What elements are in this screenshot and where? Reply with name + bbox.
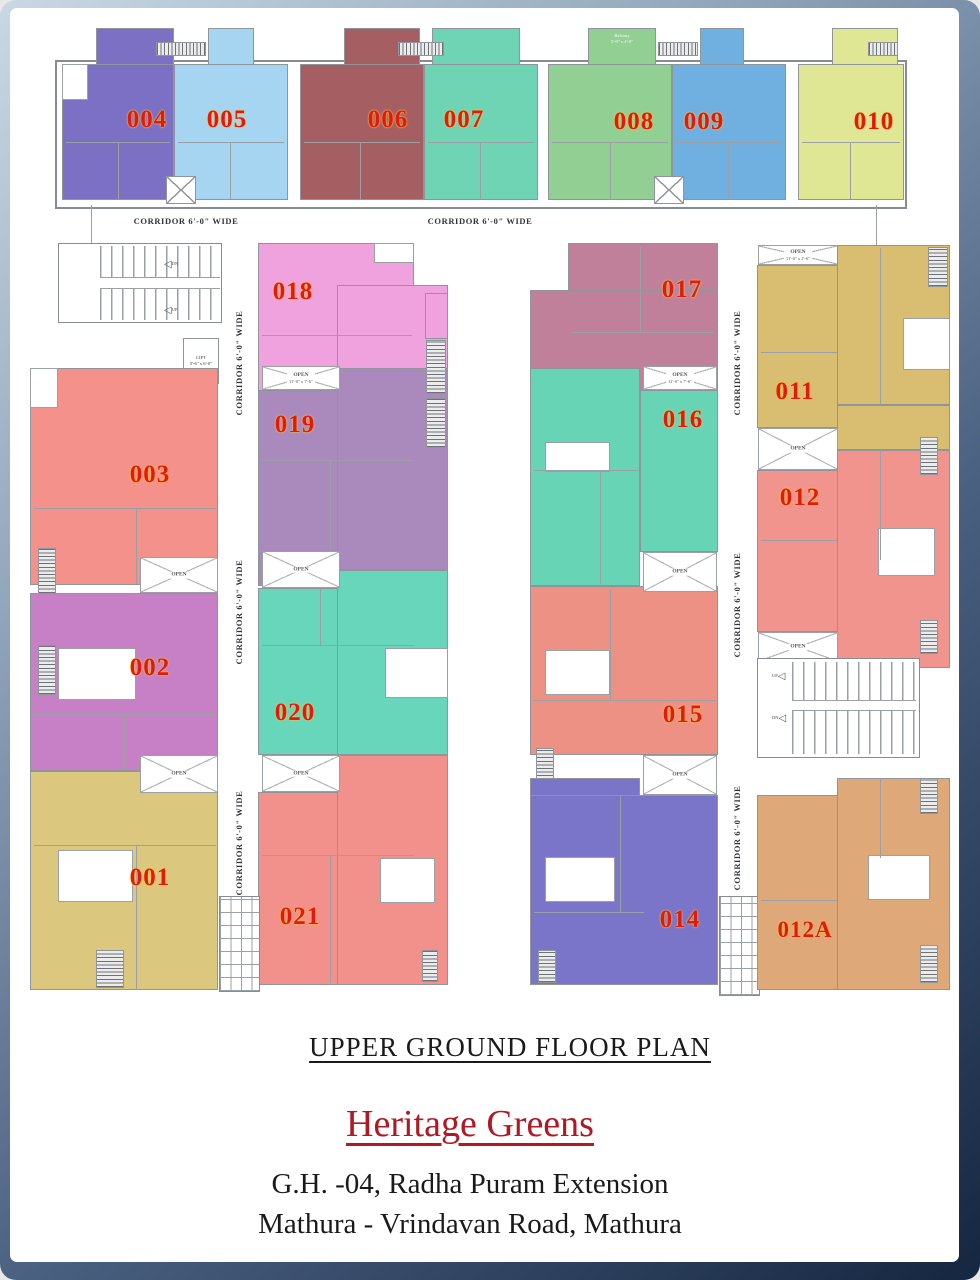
corridor-label: CORRIDOR 6'-0" WIDE	[732, 786, 742, 891]
wall-line	[91, 205, 92, 245]
unit-018-label: 018	[273, 278, 314, 306]
wall-notch	[878, 528, 935, 576]
stairs-up-arrow: UP◁	[772, 672, 785, 682]
balcony-rail-hatch	[868, 42, 898, 56]
lift-shaft	[166, 176, 196, 204]
wall-notch	[380, 858, 435, 903]
unit-009-label: 009	[684, 108, 725, 136]
corridor-label: CORRIDOR 6'-0" WIDE	[234, 311, 244, 416]
open-shaft: OPEN	[758, 428, 838, 470]
vent-hatch	[538, 950, 556, 983]
open-shaft: OPEN11'-0" x 2'-6"	[758, 245, 838, 265]
vent-hatch	[920, 778, 938, 814]
vent-hatch	[928, 247, 948, 287]
wall-line	[640, 247, 641, 332]
wall-line	[850, 142, 851, 199]
open-shaft: OPEN11'-0" x 7'-6"	[262, 366, 340, 390]
wall-line	[262, 335, 412, 336]
vent-hatch	[920, 620, 938, 654]
stairs-dn-arrow: DN◁	[772, 714, 786, 724]
balcony-label: Balcony5'-0" x 4'-0"	[590, 33, 654, 44]
wall-line	[728, 142, 729, 199]
unit-012-label: 012	[780, 484, 821, 512]
jali-screen	[219, 896, 260, 992]
balcony-rail-hatch	[398, 42, 444, 56]
corridor-label: CORRIDOR 6'-0" WIDE	[732, 311, 742, 416]
address-line-1: G.H. -04, Radha Puram Extension	[0, 1168, 940, 1201]
wall-notch	[545, 650, 610, 695]
wall-line	[876, 205, 877, 247]
wall-line	[761, 900, 837, 901]
vent-hatch	[38, 548, 56, 594]
lift-shaft	[654, 176, 684, 204]
unit-019-label: 019	[275, 411, 316, 439]
open-shaft: OPEN	[643, 552, 717, 592]
unit-014-label: 014	[660, 906, 701, 934]
unit-007-label: 007	[444, 106, 485, 134]
wall-line	[34, 508, 216, 509]
unit-006-label: 006	[368, 106, 409, 134]
wall-line	[136, 508, 137, 584]
stairs-up-arrow: ◁UP	[164, 306, 177, 316]
unit-016-label: 016	[663, 406, 704, 434]
corridor-label: CORRIDOR 6'-0" WIDE	[234, 560, 244, 665]
wall-line	[330, 855, 331, 983]
open-shaft: OPEN	[140, 755, 218, 793]
wall-line	[572, 332, 714, 333]
vent-hatch	[96, 950, 124, 988]
stair-landing	[100, 277, 220, 289]
unit-008-label: 008	[614, 108, 655, 136]
unit-012A-area	[757, 795, 838, 990]
plan-title: UPPER GROUND FLOOR PLAN	[60, 1032, 960, 1063]
wall-line	[620, 795, 621, 912]
unit-001-label: 001	[130, 864, 171, 892]
wall-notch	[545, 857, 615, 902]
wall-line	[230, 142, 231, 199]
wall-line	[880, 778, 881, 858]
unit-015-label: 015	[663, 701, 704, 729]
vent-hatch	[920, 437, 938, 475]
floor-plan-page: Balcony5'-0" x 4'-0" CORRIDOR 6'-0" WIDE…	[0, 0, 980, 1280]
corridor-label: CORRIDOR 6'-0" WIDE	[428, 216, 533, 226]
open-shaft: OPEN11'-0" x 7'-6"	[643, 366, 717, 390]
address-line-2: Mathura - Vrindavan Road, Mathura	[0, 1208, 940, 1241]
corridor-label: CORRIDOR 6'-0" WIDE	[732, 553, 742, 658]
unit-005-label: 005	[207, 106, 248, 134]
wall-line	[761, 540, 837, 541]
wall-notch	[545, 442, 610, 472]
unit-011-label: 011	[775, 378, 814, 406]
jali-screen	[719, 896, 760, 996]
unit-016-area	[530, 368, 640, 586]
unit-021-label: 021	[280, 903, 321, 931]
project-name: Heritage Greens	[0, 1102, 940, 1146]
wall-line	[480, 142, 481, 199]
wall-line	[34, 845, 216, 846]
wall-line	[610, 142, 611, 199]
unit-003-label: 003	[130, 461, 171, 489]
open-shaft: OPEN	[140, 557, 218, 593]
unit-002-label: 002	[130, 654, 171, 682]
wall-line	[304, 142, 420, 143]
vent-hatch	[426, 398, 446, 448]
stairs-dn-arrow: ◁DN	[164, 260, 178, 270]
wall-notch	[868, 855, 930, 900]
wall-line	[600, 470, 601, 584]
open-shaft: OPEN	[262, 551, 340, 588]
wall-line	[880, 450, 881, 560]
unit-003-area	[30, 368, 218, 585]
wall-notch	[385, 648, 448, 698]
corridor-label: CORRIDOR 6'-0" WIDE	[134, 216, 239, 226]
stair-landing	[792, 700, 916, 711]
wall-line	[262, 460, 412, 461]
unit-012A-label: 012A	[777, 917, 832, 943]
wall-line	[118, 142, 119, 199]
wall-notch	[903, 318, 950, 370]
wall-notch	[374, 243, 414, 263]
vent-hatch	[920, 945, 938, 983]
unit-018-area	[425, 293, 448, 339]
open-shaft: OPEN	[643, 755, 717, 795]
unit-004-label: 004	[127, 106, 168, 134]
wall-line	[534, 912, 644, 913]
wall-line	[534, 470, 638, 471]
balcony-rail-hatch	[658, 42, 698, 56]
wall-line	[320, 588, 321, 645]
wall-line	[262, 645, 414, 646]
corridor-label: CORRIDOR 6'-0" WIDE	[234, 791, 244, 896]
vent-hatch	[38, 645, 56, 695]
vent-hatch	[426, 340, 446, 394]
balcony-rail-hatch	[156, 42, 206, 56]
wall-line	[124, 714, 125, 770]
wall-notch	[30, 368, 58, 408]
wall-notch	[58, 648, 136, 700]
unit-020-label: 020	[275, 699, 316, 727]
unit-017-label: 017	[662, 276, 703, 304]
wall-line	[360, 142, 361, 199]
wall-line	[610, 590, 611, 700]
unit-010-label: 010	[854, 108, 895, 136]
open-shaft: OPEN	[262, 755, 340, 792]
wall-notch	[62, 64, 88, 100]
vent-hatch	[422, 950, 438, 982]
wall-line	[262, 855, 414, 856]
wall-notch	[58, 850, 133, 902]
wall-line	[761, 352, 837, 353]
wall-line	[880, 248, 881, 405]
